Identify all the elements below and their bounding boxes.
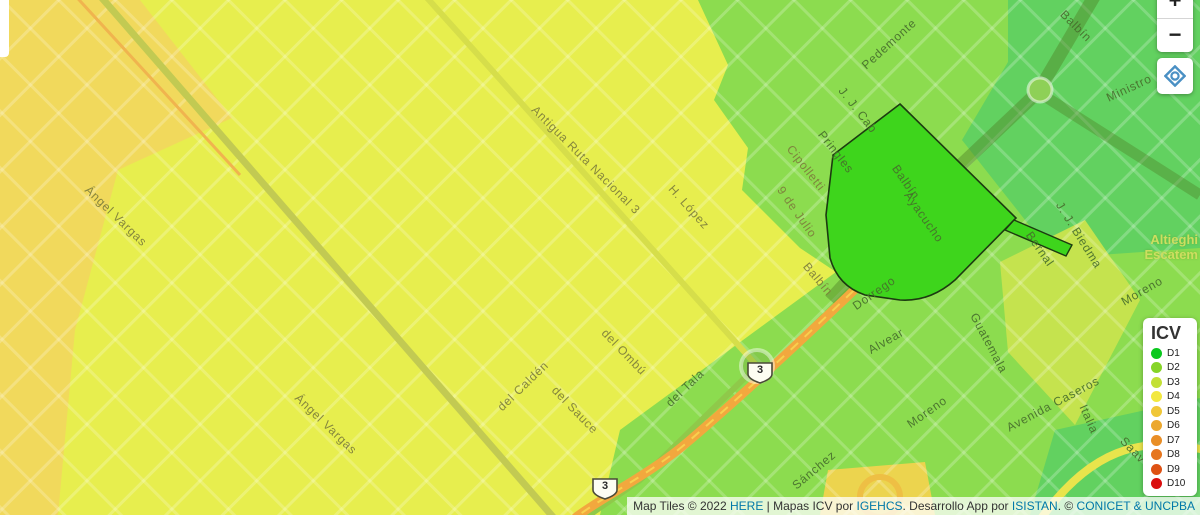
legend-item: D4	[1151, 391, 1197, 402]
legend-title: ICV	[1151, 323, 1197, 344]
route-shield-3: 3	[593, 479, 617, 499]
legend-items: D1D2D3D4D5D6D7D8D9D10	[1151, 348, 1197, 490]
legend-item-label: D7	[1167, 435, 1180, 446]
legend-item-label: D6	[1167, 420, 1180, 431]
legend-color-dot	[1151, 391, 1162, 402]
roundabout	[1028, 78, 1052, 102]
locality-label: Altieghi Escatem	[1136, 232, 1198, 262]
icv-legend: ICV D1D2D3D4D5D6D7D8D9D10	[1143, 318, 1197, 496]
legend-item: D3	[1151, 377, 1197, 388]
legend-color-dot	[1151, 435, 1162, 446]
locate-button[interactable]	[1157, 58, 1193, 94]
legend-item-label: D9	[1167, 464, 1180, 475]
svg-text:3: 3	[757, 364, 763, 376]
zoom-control: + −	[1157, 0, 1193, 52]
zoom-out-button[interactable]: −	[1157, 19, 1193, 53]
route-shield-3: 3	[748, 363, 772, 383]
legend-item: D6	[1151, 420, 1197, 431]
choropleth-map[interactable]: 3 3	[0, 0, 1200, 515]
attribution-link[interactable]: CONICET & UNCPBA	[1077, 499, 1195, 513]
map-viewport[interactable]: 3 3 Ángel VargasÁngel VargasAntigua Ruta…	[0, 0, 1200, 515]
locate-icon	[1164, 65, 1186, 87]
legend-color-dot	[1151, 464, 1162, 475]
legend-color-dot	[1151, 420, 1162, 431]
street-grid	[0, 0, 1200, 515]
legend-item: D7	[1151, 435, 1197, 446]
legend-item-label: D5	[1167, 406, 1180, 417]
legend-item: D2	[1151, 362, 1197, 373]
legend-item: D10	[1151, 478, 1197, 489]
legend-color-dot	[1151, 406, 1162, 417]
legend-item-label: D3	[1167, 377, 1180, 388]
legend-item: D8	[1151, 449, 1197, 460]
legend-color-dot	[1151, 348, 1162, 359]
attribution-link[interactable]: ISISTAN	[1012, 499, 1058, 513]
attribution-text: . ©	[1058, 499, 1077, 513]
legend-color-dot	[1151, 449, 1162, 460]
legend-item: D5	[1151, 406, 1197, 417]
attribution-text: Map Tiles © 2022	[633, 499, 730, 513]
legend-item: D1	[1151, 348, 1197, 359]
legend-color-dot	[1151, 362, 1162, 373]
attribution-bar: Map Tiles © 2022 HERE | Mapas ICV por IG…	[627, 497, 1200, 515]
attribution-text: | Mapas ICV por	[763, 499, 856, 513]
legend-item-label: D4	[1167, 391, 1180, 402]
zoom-in-button[interactable]: +	[1157, 0, 1193, 18]
legend-item-label: D10	[1167, 478, 1185, 489]
legend-item-label: D8	[1167, 449, 1180, 460]
attribution-text: . Desarrollo App por	[903, 499, 1012, 513]
svg-text:3: 3	[602, 480, 608, 492]
legend-color-dot	[1151, 377, 1162, 388]
attribution-link[interactable]: IGEHCS	[856, 499, 902, 513]
locality-line1: Altieghi	[1136, 232, 1198, 247]
legend-item: D9	[1151, 464, 1197, 475]
collapsed-panel-edge[interactable]	[0, 0, 9, 57]
legend-item-label: D2	[1167, 362, 1180, 373]
legend-item-label: D1	[1167, 348, 1180, 359]
locality-line2: Escatem	[1136, 247, 1198, 262]
attribution-link[interactable]: HERE	[730, 499, 763, 513]
legend-color-dot	[1151, 478, 1162, 489]
